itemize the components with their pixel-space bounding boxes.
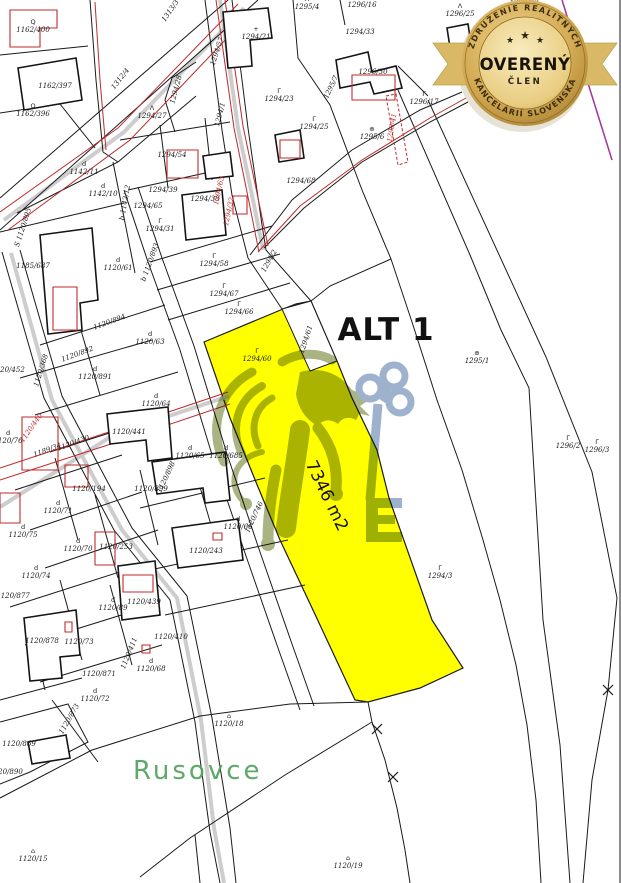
- badge-subtitle: ČLEN: [508, 75, 543, 87]
- parcel-symbol: Γ: [438, 564, 442, 572]
- parcel-label: d1120/61: [103, 256, 132, 272]
- parcel-boundary-line: [103, 152, 118, 162]
- parcel-boundary-line: [15, 455, 122, 490]
- parcel-label: d1120/64: [141, 392, 170, 408]
- parcel-number: 1296/17: [409, 98, 439, 106]
- parcel-symbol: Γ: [158, 217, 162, 225]
- parcel-label: Γ1294/67: [209, 282, 239, 298]
- parcel-boundary-line: [165, 585, 305, 615]
- parcel-number: 1162/396: [16, 110, 50, 118]
- parcel-label: ⌂1120/18: [214, 712, 244, 728]
- parcel-number: 1294/39: [148, 186, 178, 194]
- parcel-label: Γ1294/25: [299, 115, 329, 131]
- parcel-label: 1120/877: [0, 592, 30, 600]
- parcel-label: Γ1294/23: [264, 87, 294, 103]
- parcel-symbol: Λ: [458, 2, 463, 10]
- parcel-number: 1120/891: [78, 373, 112, 381]
- parcel-number: 1294/31: [145, 225, 174, 233]
- parcel-number: b 1120/893: [139, 242, 160, 283]
- parcel-label: 1185/687: [16, 262, 50, 270]
- parcel-label: Q1162/400: [16, 18, 50, 34]
- building-footprint: [203, 152, 233, 179]
- parcel-number: 1296/2: [556, 442, 581, 450]
- parcel-label: d1142/10: [88, 182, 118, 198]
- parcel-label: d1120/68: [136, 657, 166, 673]
- parcel-number: 1294/23: [264, 95, 294, 103]
- badge-star-icon: ★: [536, 36, 544, 46]
- parcel-label: 1294/2: [260, 248, 280, 274]
- parcel-symbol: d: [101, 182, 105, 190]
- building-footprint-red: [65, 465, 88, 487]
- parcel-symbol: Γ: [237, 300, 241, 308]
- parcel-symbol: ⌂: [346, 854, 350, 862]
- parcel-number: 1295/4: [295, 3, 320, 11]
- parcel-symbol: Q: [30, 102, 35, 110]
- parcel-number: 1120/871: [82, 670, 116, 678]
- parcel-label: 1120/878: [25, 637, 59, 645]
- parcel-number: b 1142/12: [118, 184, 132, 221]
- parcel-number: 1185/687: [16, 262, 50, 270]
- badge-star-icon: ★: [506, 36, 514, 46]
- parcel-symbol: Γ: [222, 282, 226, 290]
- parcel-number: 1120/18: [214, 720, 244, 728]
- parcel-number: 1120/869: [2, 740, 36, 748]
- parcel-symbol: d: [149, 657, 153, 665]
- parcel-number: 1120/76: [0, 437, 23, 445]
- parcel-number: 1120/66: [223, 523, 253, 531]
- parcel-label: 1120/899: [134, 485, 168, 493]
- parcel-number: 1294/33: [345, 28, 375, 36]
- parcel-number: 1120/899: [134, 485, 168, 493]
- parcel-label: ⌂1120/19: [333, 854, 363, 870]
- parcel-symbol: d: [236, 515, 240, 523]
- parcel-label: d1120/70: [63, 537, 93, 553]
- parcel-number: 1120/72: [80, 695, 110, 703]
- parcel-symbol: Γ: [255, 347, 259, 355]
- badge-star-icon: ★: [520, 29, 530, 42]
- parcel-label: ⊕1295/6: [360, 125, 385, 141]
- parcel-number: 1294/3: [428, 572, 453, 580]
- parcel-symbol: Γ: [212, 252, 216, 260]
- parcel-number: 1162/400: [16, 26, 50, 34]
- parcel-label: Γ1296/3: [585, 438, 610, 454]
- parcel-number: 1120/89: [98, 604, 128, 612]
- badge-seal: ZDRUŽENIE REALITNÝCH KANCELÁRIÍ SLOVENSK…: [462, 0, 588, 126]
- parcel-label: 1294/1: [213, 102, 227, 128]
- parcel-boundary-line: [368, 702, 410, 883]
- parcel-number: 1120/75: [8, 531, 38, 539]
- parcel-label: 1120/243: [189, 547, 223, 555]
- parcel-number: 1162/397: [38, 82, 72, 90]
- parcel-label: 1295/7: [322, 74, 340, 100]
- parcel-label: Γ1294/58: [199, 252, 229, 268]
- parcel-number: 1120/70: [63, 545, 93, 553]
- parcel-label: Γ1294/31: [145, 217, 174, 233]
- boundary-cross-mark: [372, 724, 382, 734]
- parcel-label: 1120/73: [64, 638, 94, 646]
- parcel-number: 1120/452: [0, 366, 25, 374]
- parcel-label: 1294/68: [286, 177, 316, 185]
- certification-badge: ZDRUŽENIE REALITNÝCH KANCELÁRIÍ SLOVENSK…: [433, 0, 617, 132]
- parcel-number: 1295/6: [360, 133, 385, 141]
- parcel-label: b 1120/893: [139, 242, 160, 283]
- parcel-symbol: Γ: [422, 90, 426, 98]
- parcel-boundary-line: [264, 102, 468, 248]
- parcel-symbol: ⌂: [227, 712, 231, 720]
- parcel-number: 1295/1: [465, 357, 490, 365]
- parcel-boundary-line: [340, 0, 345, 25]
- parcel-number: 1120/15: [18, 855, 48, 863]
- parcel-number: 1120/73: [64, 638, 94, 646]
- parcel-label: 1294/28: [168, 74, 183, 105]
- parcel-label: 1294/33: [345, 28, 375, 36]
- parcel-number: 1120/71: [43, 507, 72, 515]
- parcel-symbol: ⊕: [474, 349, 479, 357]
- parcel-number: 1120/194: [72, 485, 106, 493]
- parcel-number: 1296/16: [347, 1, 377, 9]
- parcel-label: 1120/869: [2, 740, 36, 748]
- parcel-symbol: d: [56, 499, 60, 507]
- parcel-label: 1120/894: [92, 313, 126, 332]
- parcel-symbol: d: [188, 444, 192, 452]
- parcel-number: 1294/32: [222, 196, 236, 227]
- parcel-boundary-line: [140, 722, 372, 877]
- parcel-label: Γ1296/17: [409, 90, 439, 106]
- parcel-number: 1120/410: [154, 633, 188, 641]
- parcel-number: 1294/63: [212, 175, 226, 206]
- parcel-number: 1296/25: [445, 10, 475, 18]
- parcel-symbol: d: [76, 537, 80, 545]
- cadastral-map-svg: Q1162/4001162/397Q1162/3961312/41313/312…: [0, 0, 621, 883]
- parcel-number: 1313/3: [160, 0, 181, 23]
- alt1-label: ALT 1: [337, 312, 434, 348]
- parcel-boundary-line: [195, 835, 200, 883]
- parcel-boundary-line: [398, 90, 570, 883]
- parcel-label: 1294/32: [222, 196, 236, 227]
- parcel-label: 1120/871: [82, 670, 116, 678]
- badge-title: OVERENÝ: [480, 55, 571, 74]
- parcel-number: 1294/27: [137, 112, 167, 120]
- parcel-number: 1120/74: [21, 572, 50, 580]
- parcel-label: 1294/39: [148, 186, 178, 194]
- parcel-number: 1120/68: [136, 665, 166, 673]
- map-document: Q1162/4001162/397Q1162/3961312/41313/312…: [0, 0, 621, 883]
- parcel-number: 1296/3: [585, 446, 610, 454]
- parcel-symbol: d: [93, 687, 97, 695]
- building-footprint: [40, 228, 98, 334]
- parcel-label: d1142/11: [69, 160, 98, 176]
- parcel-label: 1294/54: [157, 151, 186, 159]
- parcel-label: Γ1294/3: [428, 564, 453, 580]
- parcel-symbol: ⌂: [31, 847, 35, 855]
- parcel-number: 1120/65: [175, 452, 205, 460]
- parcel-label: d1120/891: [78, 365, 112, 381]
- parcel-label: 1162/397: [38, 82, 72, 90]
- parcel-label: 1120/194: [72, 485, 106, 493]
- parcel-label: Λ1295/4: [295, 0, 320, 11]
- parcel-label: ⌂1120/15: [18, 847, 48, 863]
- parcel-number: 1120/890: [0, 768, 23, 776]
- parcel-symbol: d: [111, 596, 115, 604]
- parcel-label: ⊕1295/1: [465, 349, 490, 365]
- parcel-label: 1294/65: [133, 202, 163, 210]
- parcel-symbol: d: [21, 523, 25, 531]
- parcel-symbol: Γ: [566, 434, 570, 442]
- parcel-number: 1120/439: [127, 598, 161, 606]
- parcel-symbol: Λ: [150, 104, 155, 112]
- parcel-symbol: d: [224, 444, 228, 452]
- parcel-label: d1120/72: [80, 687, 110, 703]
- parcel-boundary-line: [428, 100, 617, 883]
- parcel-number: 1120/441: [112, 428, 146, 436]
- parcel-symbol: Q: [30, 18, 35, 26]
- parcel-number: 1294/65: [133, 202, 163, 210]
- parcel-number: 1120/61: [103, 264, 132, 272]
- parcel-label: 1120/890: [0, 768, 23, 776]
- parcel-number: 1120/894: [92, 313, 126, 332]
- map-layers: Q1162/4001162/397Q1162/3961312/41313/312…: [0, 0, 620, 883]
- parcel-number: 1296/30: [358, 68, 388, 76]
- parcel-number: 1294/28: [168, 74, 183, 105]
- parcel-label: Λ1296/25: [445, 2, 475, 18]
- parcel-number: 1294/2: [260, 248, 280, 274]
- parcel-label: 1296/16: [347, 1, 377, 9]
- parcel-label: 1294/63: [212, 175, 226, 206]
- parcel-symbol: d: [116, 256, 120, 264]
- parcel-boundary-line: [311, 259, 391, 301]
- parcel-label: 1120/452: [0, 366, 25, 374]
- parcel-number: 1294/68: [286, 177, 316, 185]
- parcel-number: 1294/66: [224, 308, 254, 316]
- parcel-symbol: ⊕: [369, 125, 374, 133]
- parcel-label: d1120/74: [21, 564, 50, 580]
- region-label: Rusovce: [133, 756, 263, 786]
- parcel-symbol: d: [148, 330, 152, 338]
- parcel-label: 1120/441: [112, 428, 146, 436]
- parcel-symbol: d: [6, 429, 10, 437]
- parcel-symbol: Γ: [312, 115, 316, 123]
- parcel-label: d1120/63: [135, 330, 165, 346]
- parcel-label: 1120/439: [127, 598, 161, 606]
- parcel-label: b 1142/12: [118, 184, 132, 221]
- parcel-symbol: d: [93, 365, 97, 373]
- parcel-label: Γ1294/66: [224, 300, 254, 316]
- parcel-number: 1294/54: [157, 151, 186, 159]
- parcel-label: d1120/65: [175, 444, 205, 460]
- parcel-symbol: d: [154, 392, 158, 400]
- parcel-number: 1120/877: [0, 592, 30, 600]
- parcel-symbol: d: [34, 564, 38, 572]
- parcel-symbol: Γ: [595, 438, 599, 446]
- parcel-number: 1120/19: [333, 862, 363, 870]
- parcel-label: d1120/76: [0, 429, 23, 445]
- parcel-number: 1294/21: [241, 33, 270, 41]
- parcel-symbol: +: [253, 25, 258, 33]
- parcel-label: d1120/71: [43, 499, 72, 515]
- parcel-number: 1294/67: [209, 290, 239, 298]
- parcel-number: 1120/253: [99, 543, 133, 551]
- parcel-label: 1313/3: [160, 0, 181, 23]
- parcel-number: 1120/63: [135, 338, 165, 346]
- parcel-symbol: Γ: [277, 87, 281, 95]
- parcel-number: 1294/60: [242, 355, 272, 363]
- parcel-number: 1295/7: [322, 74, 340, 100]
- parcel-number: 1120/64: [141, 400, 170, 408]
- parcel-label: d1120/75: [8, 523, 38, 539]
- parcel-label: 1296/30: [358, 68, 388, 76]
- parcel-label: Γ1296/2: [556, 434, 581, 450]
- parcel-number: 1142/11: [69, 168, 98, 176]
- parcel-number: 1294/25: [299, 123, 329, 131]
- parcel-label: 1120/253: [99, 543, 133, 551]
- parcel-number: 1142/10: [88, 190, 118, 198]
- parcel-label: 1120/410: [154, 633, 188, 641]
- parcel-number: 1120/243: [189, 547, 223, 555]
- parcel-symbol: d: [82, 160, 86, 168]
- parcel-number: 1294/1: [213, 102, 227, 128]
- parcel-number: 1120/878: [25, 637, 59, 645]
- parcel-number: 1294/58: [199, 260, 229, 268]
